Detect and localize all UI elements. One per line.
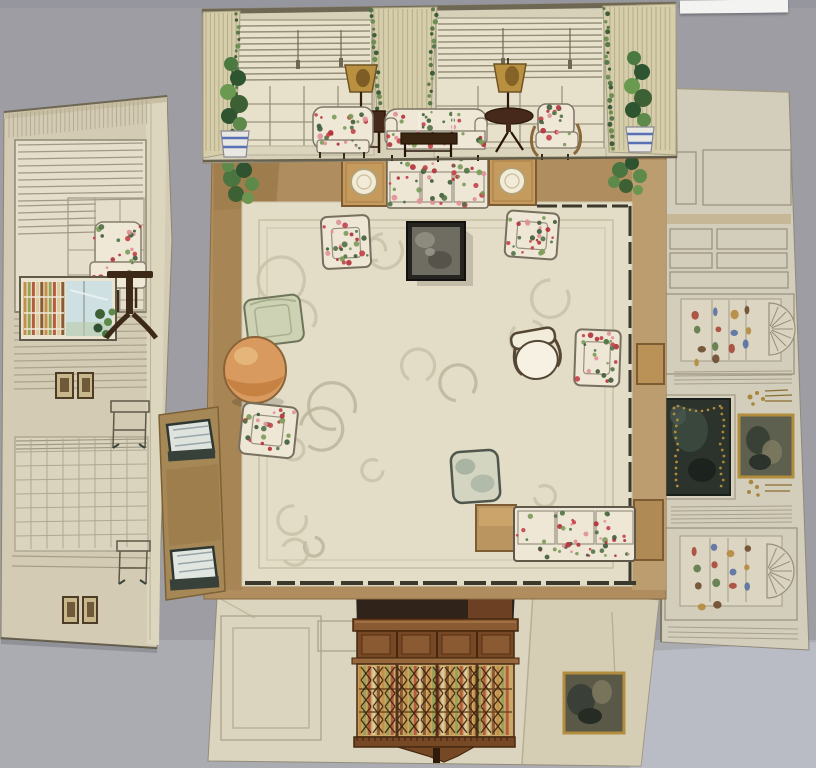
sofa-end-block-right	[634, 500, 663, 560]
left-wall-panel	[1, 96, 172, 653]
plan-armchair-3	[238, 402, 298, 458]
scene-svg	[0, 0, 816, 768]
plan-armchair-2	[504, 210, 559, 260]
plan-armchair-1	[321, 215, 372, 269]
fireplace	[663, 395, 735, 499]
window-bench-upper	[167, 420, 215, 462]
lower-china-niche	[665, 528, 797, 620]
side-table-right-wall	[637, 344, 664, 384]
floral-armchair-left	[313, 107, 373, 159]
right-wall-panel	[661, 88, 809, 650]
bottom-wall-sheet	[208, 585, 659, 766]
floor-plan-sheet	[204, 150, 666, 599]
right-panel-chair-rail	[667, 214, 791, 224]
corner-label	[680, 0, 788, 14]
end-table-lamp-left	[342, 159, 387, 206]
left-window-lower	[15, 437, 148, 551]
plan-sofa-top	[387, 154, 488, 208]
drapery-center	[371, 7, 437, 115]
mantel-painting	[739, 415, 793, 477]
center-table-marble-top	[407, 222, 473, 286]
end-table-lamp-right	[489, 157, 536, 205]
window-bench-lower	[170, 547, 220, 591]
gray-cushion-chair	[450, 449, 500, 503]
alcove-with-books	[20, 277, 116, 340]
plan-armchair-4	[574, 329, 621, 387]
finial-drop	[433, 748, 440, 763]
framed-painting-bottom	[564, 673, 624, 733]
plan-sofa-bottom-group	[476, 500, 663, 561]
left-door-flap	[159, 407, 225, 600]
breakfront-bookcase	[352, 619, 519, 763]
photo-of-watercolor	[0, 0, 816, 768]
top-wall-panel	[202, 2, 677, 163]
